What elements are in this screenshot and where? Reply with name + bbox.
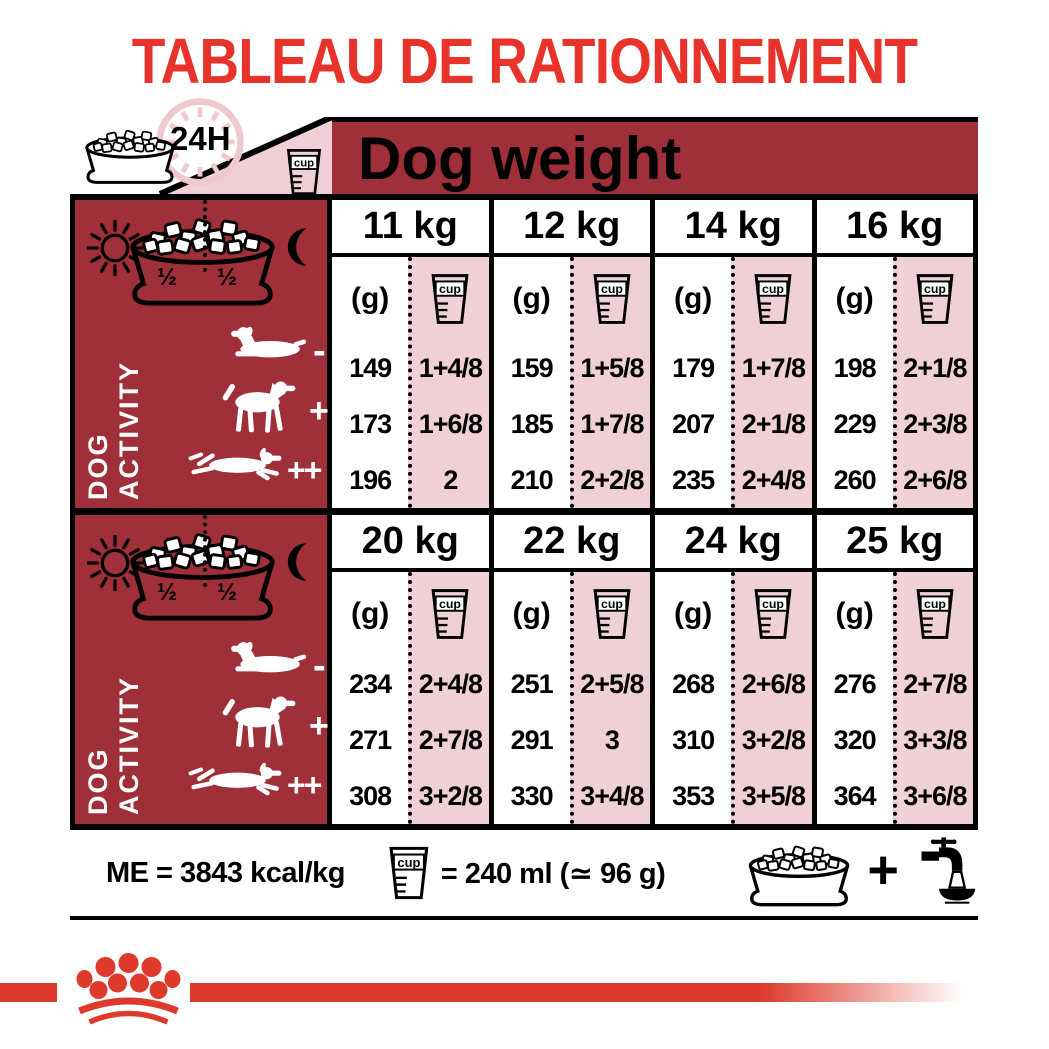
weight-section-1: ½ ½ DOG ACTIVITY - + ++ 11 kg (g)	[70, 200, 978, 515]
weight-column: 16 kg (g) 198 229 260 2+1/8 2+3/8 2+6	[812, 200, 974, 508]
dog-weight-header: Dog weight	[332, 117, 978, 194]
cups-value: 3+3/8	[897, 712, 973, 768]
energy-text: ME = 3843 kcal/kg	[106, 857, 345, 890]
weight-label: 14 kg	[655, 200, 812, 257]
weight-column: 14 kg (g) 179 207 235 1+7/8 2+1/8 2+4	[650, 200, 812, 508]
weight-column: 20 kg (g) 234 271 308 2+4/8 2+7/8 3+2	[332, 515, 489, 824]
activity-marker-high: ++	[287, 767, 320, 804]
measuring-cup-icon	[284, 148, 324, 196]
weight-columns: 20 kg (g) 234 271 308 2+4/8 2+7/8 3+2	[332, 515, 978, 824]
lying-dog-icon	[225, 637, 307, 679]
measuring-cup-icon	[412, 257, 488, 341]
weight-column: 24 kg (g) 268 310 353 2+6/8 3+2/8 3+5	[650, 515, 812, 824]
grams-value: 198	[817, 341, 893, 397]
running-dog-icon	[187, 759, 283, 802]
activity-sidebar: ½ ½ DOG ACTIVITY - + ++	[70, 515, 332, 824]
cups-value: 2+6/8	[897, 452, 973, 508]
grams-value: 276	[817, 656, 893, 712]
daily-ration-bowl-icon: ½ ½	[125, 212, 280, 317]
grams-value: 308	[332, 768, 408, 824]
standing-dog-icon	[221, 691, 297, 749]
weight-section-2: ½ ½ DOG ACTIVITY - + ++ 20 kg (g)	[70, 515, 978, 830]
half-divider-dotted-line	[203, 200, 207, 272]
grams-value: 185	[494, 397, 570, 453]
grams-value: 251	[494, 656, 570, 712]
rationing-panel: TABLEAU DE RATIONNEMENT 24H Dog weight	[0, 0, 1049, 1049]
grams-value: 196	[332, 452, 408, 508]
measuring-cup-icon	[735, 572, 811, 656]
cups-value: 1+4/8	[412, 341, 488, 397]
grams-value: 235	[655, 452, 731, 508]
cups-value: 2+1/8	[897, 341, 973, 397]
grams-value: 159	[494, 341, 570, 397]
activity-marker-low: -	[313, 330, 326, 373]
water-tap-icon	[911, 825, 978, 917]
table-header-row: 24H Dog weight	[70, 117, 978, 200]
kibble-bowl-icon	[745, 831, 853, 919]
cups-value: 2+1/8	[735, 397, 811, 453]
activity-sidebar: ½ ½ DOG ACTIVITY - + ++	[70, 200, 332, 508]
table-footer: ME = 3843 kcal/kg = 240 ml (≃ 96 g) +	[70, 830, 978, 920]
weight-column: 12 kg (g) 159 185 210 1+5/8 1+7/8 2+2	[489, 200, 651, 508]
header-corner: 24H	[70, 117, 332, 194]
measuring-cup-icon	[897, 257, 973, 341]
weight-label: 11 kg	[332, 200, 489, 257]
brand-stripe-right	[190, 983, 962, 1002]
weight-columns: 11 kg (g) 149 173 196 1+4/8 1+6/8 2	[332, 200, 978, 508]
dog-activity-label: DOG ACTIVITY	[83, 295, 145, 500]
measuring-cup-icon	[897, 572, 973, 656]
cups-value: 2+4/8	[735, 452, 811, 508]
running-dog-icon	[187, 444, 283, 487]
grams-value: 260	[817, 452, 893, 508]
grams-value: 229	[817, 397, 893, 453]
ration-table: 24H Dog weight ½ ½ DOG ACTIVITY - +	[70, 117, 978, 830]
measuring-cup-icon	[574, 572, 650, 656]
grams-value: 271	[332, 712, 408, 768]
cups-value: 3+4/8	[574, 768, 650, 824]
grams-value: 234	[332, 656, 408, 712]
measuring-cup-icon	[735, 257, 811, 341]
grams-unit-label: (g)	[817, 257, 893, 341]
grams-value: 291	[494, 712, 570, 768]
royal-canin-crown-logo	[72, 951, 185, 1027]
grams-value: 330	[494, 768, 570, 824]
grams-value: 310	[655, 712, 731, 768]
cups-value: 1+7/8	[574, 397, 650, 453]
half-portion-right: ½	[217, 264, 237, 292]
grams-value: 173	[332, 397, 408, 453]
grams-unit-label: (g)	[655, 257, 731, 341]
measuring-cup-icon	[412, 572, 488, 656]
plus-icon: +	[867, 839, 899, 901]
daily-ration-bowl-icon: ½ ½	[125, 527, 280, 632]
food-bowl-icon	[82, 125, 178, 187]
cups-value: 2+7/8	[897, 656, 973, 712]
activity-marker-medium: +	[309, 392, 329, 431]
activity-marker-medium: +	[309, 707, 329, 746]
grams-unit-label: (g)	[494, 257, 570, 341]
half-divider-dotted-line	[203, 515, 207, 587]
lying-dog-icon	[225, 322, 307, 364]
cups-value: 2+5/8	[574, 656, 650, 712]
half-portion-left: ½	[157, 579, 177, 607]
grams-value: 364	[817, 768, 893, 824]
activity-marker-low: -	[313, 645, 326, 688]
weight-column: 11 kg (g) 149 173 196 1+4/8 1+6/8 2	[332, 200, 489, 508]
cups-value: 3+5/8	[735, 768, 811, 824]
cups-value: 3+6/8	[897, 768, 973, 824]
moon-icon	[281, 539, 315, 585]
brand-stripe-left	[0, 983, 57, 1002]
cup-equivalence-text: = 240 ml (≃ 96 g)	[441, 856, 666, 891]
grams-value: 207	[655, 397, 731, 453]
grams-unit-label: (g)	[494, 572, 570, 656]
cups-value: 3+2/8	[412, 768, 488, 824]
grams-unit-label: (g)	[655, 572, 731, 656]
measuring-cup-icon	[387, 835, 431, 911]
standing-dog-icon	[221, 376, 297, 434]
grams-value: 320	[817, 712, 893, 768]
grams-unit-label: (g)	[332, 257, 408, 341]
activity-marker-high: ++	[287, 452, 320, 489]
grams-value: 268	[655, 656, 731, 712]
cups-value: 2+4/8	[412, 656, 488, 712]
weight-label: 20 kg	[332, 515, 489, 572]
cups-value: 2+3/8	[897, 397, 973, 453]
cups-value: 2+2/8	[574, 452, 650, 508]
grams-value: 210	[494, 452, 570, 508]
half-portion-left: ½	[157, 264, 177, 292]
grams-unit-label: (g)	[817, 572, 893, 656]
moon-icon	[281, 224, 315, 270]
weight-column: 22 kg (g) 251 291 330 2+5/8 3 3+4/8	[489, 515, 651, 824]
weight-label: 22 kg	[494, 515, 651, 572]
cups-value: 1+6/8	[412, 397, 488, 453]
half-portion-right: ½	[217, 579, 237, 607]
weight-column: 25 kg (g) 276 320 364 2+7/8 3+3/8 3+6	[812, 515, 974, 824]
grams-value: 353	[655, 768, 731, 824]
dog-activity-label: DOG ACTIVITY	[83, 610, 145, 815]
weight-label: 24 kg	[655, 515, 812, 572]
cups-value: 1+5/8	[574, 341, 650, 397]
grams-value: 149	[332, 341, 408, 397]
weight-label: 16 kg	[817, 200, 974, 257]
duration-badge: 24H	[170, 120, 231, 158]
grams-value: 179	[655, 341, 731, 397]
weight-label: 25 kg	[817, 515, 974, 572]
cups-value: 3+2/8	[735, 712, 811, 768]
page-title: TABLEAU DE RATIONNEMENT	[73, 24, 975, 98]
cups-value: 2	[412, 452, 488, 508]
cups-value: 1+7/8	[735, 341, 811, 397]
weight-label: 12 kg	[494, 200, 651, 257]
cups-value: 3	[574, 712, 650, 768]
grams-unit-label: (g)	[332, 572, 408, 656]
cups-value: 2+7/8	[412, 712, 488, 768]
cups-value: 2+6/8	[735, 656, 811, 712]
measuring-cup-icon	[574, 257, 650, 341]
